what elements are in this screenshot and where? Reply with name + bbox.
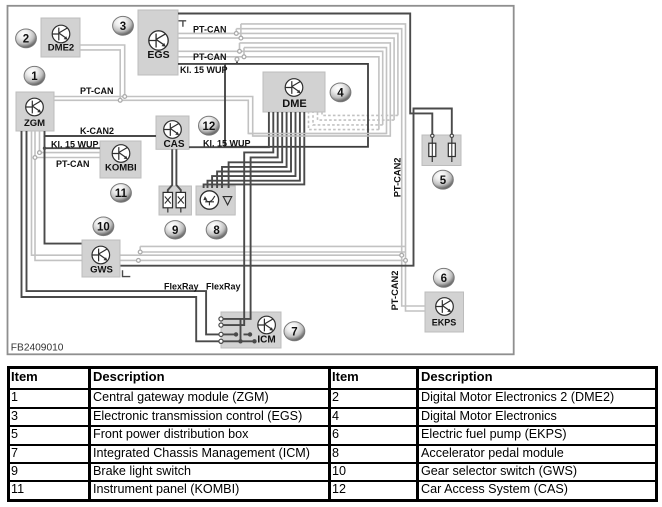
svg-text:DME: DME xyxy=(282,98,306,110)
svg-text:10: 10 xyxy=(97,221,110,233)
svg-text:8: 8 xyxy=(213,225,220,237)
svg-text:KOMBI: KOMBI xyxy=(105,163,137,174)
svg-text:GWS: GWS xyxy=(90,265,113,276)
svg-text:7: 7 xyxy=(291,326,297,338)
svg-text:9: 9 xyxy=(172,225,178,237)
svg-text:PT-CAN: PT-CAN xyxy=(193,25,227,35)
svg-text:Kl. 15 WUP: Kl. 15 WUP xyxy=(180,65,228,75)
svg-text:K-CAN2: K-CAN2 xyxy=(80,126,114,136)
svg-text:PT-CAN2: PT-CAN2 xyxy=(390,271,400,311)
svg-text:Kl. 15 WUP: Kl. 15 WUP xyxy=(203,138,251,148)
svg-text:PT-CAN: PT-CAN xyxy=(193,52,227,62)
svg-text:2: 2 xyxy=(23,34,29,46)
svg-text:PT-CAN2: PT-CAN2 xyxy=(392,158,402,198)
svg-text:12: 12 xyxy=(203,121,216,133)
svg-text:Kl. 15 WUP: Kl. 15 WUP xyxy=(51,140,99,150)
svg-text:FlexRay: FlexRay xyxy=(164,282,199,292)
svg-text:ICM: ICM xyxy=(257,335,275,346)
svg-text:FB2409010: FB2409010 xyxy=(11,343,64,354)
svg-text:11: 11 xyxy=(115,188,128,200)
svg-text:3: 3 xyxy=(120,21,126,33)
svg-text:ZGM: ZGM xyxy=(24,118,45,129)
svg-text:PT-CAN: PT-CAN xyxy=(56,159,90,169)
svg-text:EKPS: EKPS xyxy=(432,318,457,328)
svg-text:DME2: DME2 xyxy=(48,43,74,54)
svg-text:FlexRay: FlexRay xyxy=(206,282,241,292)
svg-text:PT-CAN: PT-CAN xyxy=(80,86,114,96)
svg-text:6: 6 xyxy=(441,273,447,285)
svg-text:5: 5 xyxy=(440,175,447,187)
svg-text:1: 1 xyxy=(31,71,38,83)
svg-text:CAS: CAS xyxy=(163,139,184,150)
svg-text:EGS: EGS xyxy=(147,49,169,61)
svg-text:4: 4 xyxy=(337,88,344,100)
